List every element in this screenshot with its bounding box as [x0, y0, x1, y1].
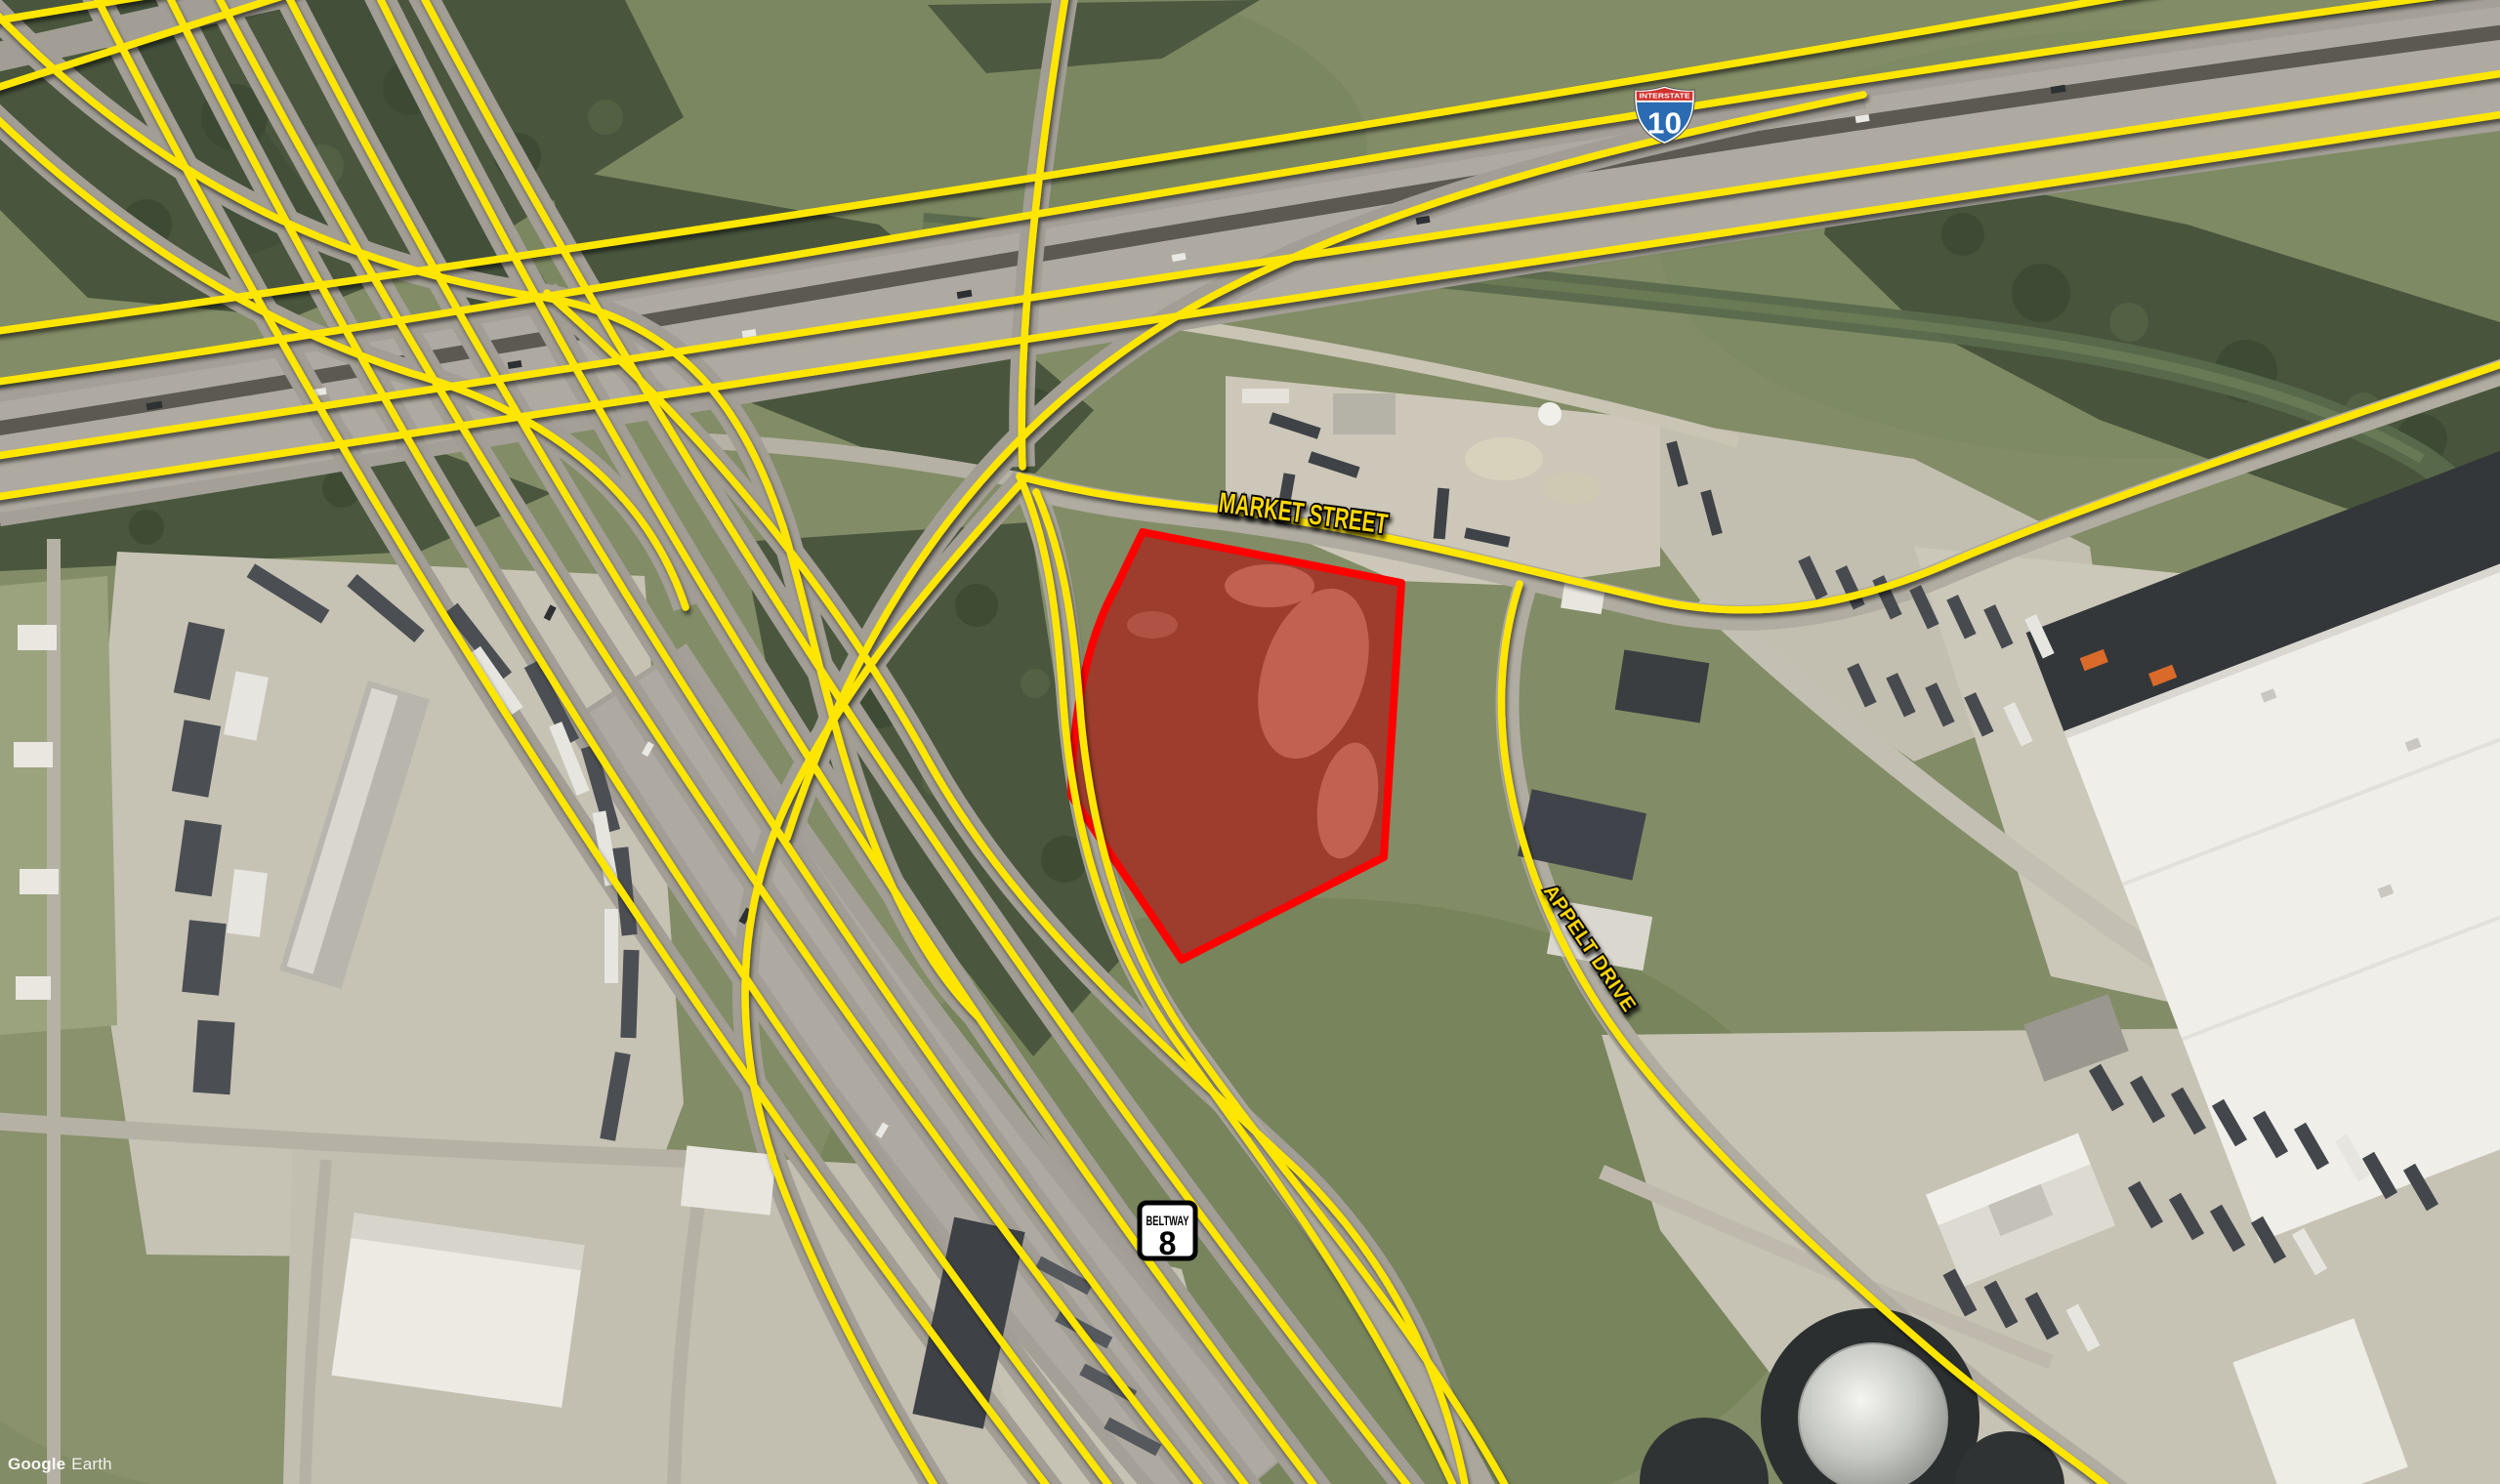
beltway-marker-number: 8: [1159, 1225, 1177, 1262]
satellite-map-canvas[interactable]: MARKET STREET APPELT DRIVE INTERSTATE 10…: [0, 0, 2500, 1484]
interstate-number: 10: [1647, 105, 1682, 140]
watermark-product: Earth: [71, 1455, 112, 1473]
interstate-banner-text: INTERSTATE: [1640, 92, 1690, 101]
beltway-8-marker: BELTWAY 8: [1140, 1203, 1195, 1262]
satellite-imagery: MARKET STREET APPELT DRIVE INTERSTATE 10…: [0, 0, 2500, 1484]
google-earth-watermark: GoogleEarth: [8, 1455, 112, 1474]
watermark-brand: Google: [8, 1455, 65, 1473]
